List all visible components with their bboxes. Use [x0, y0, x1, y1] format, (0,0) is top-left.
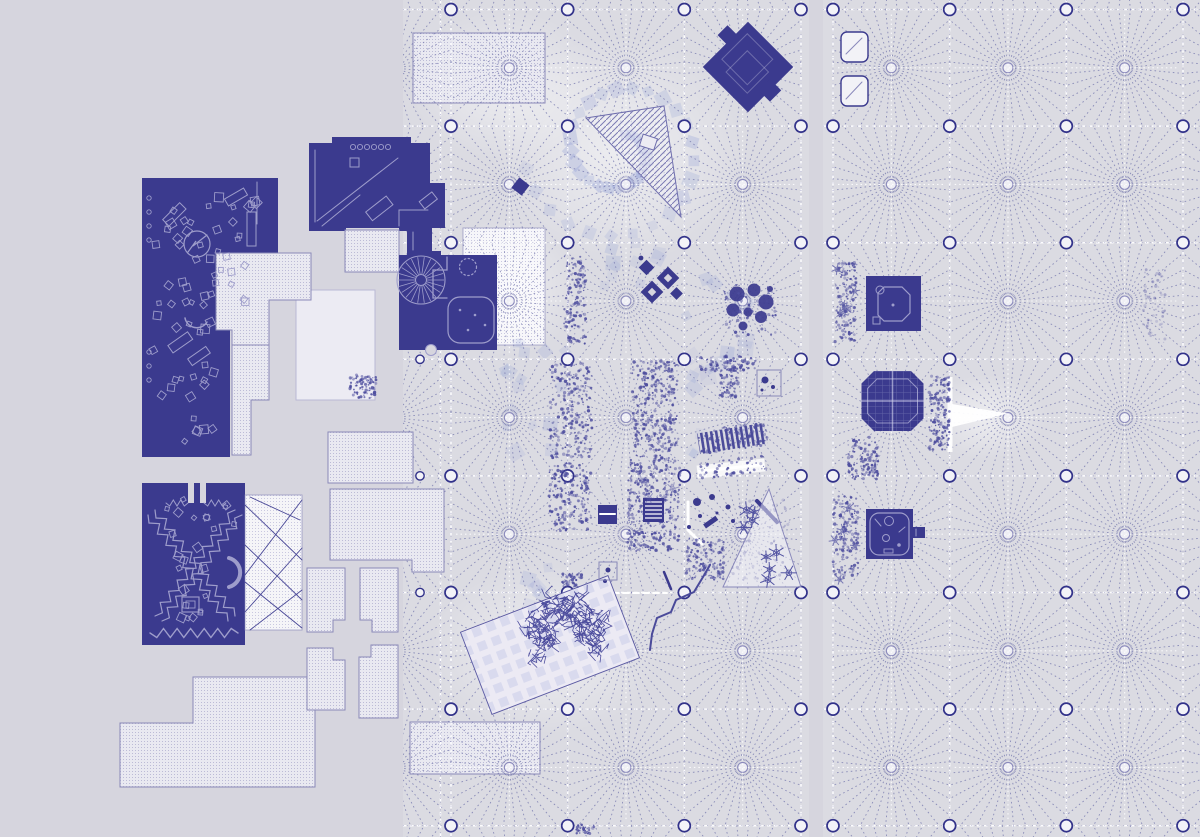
door-notch — [426, 345, 437, 356]
building-connector — [407, 228, 432, 255]
kiosk-rounded — [841, 32, 868, 62]
site-plan-svg — [0, 0, 1200, 837]
grid-node-extra — [416, 588, 424, 596]
blueprint-site-plan — [0, 0, 1200, 837]
hatch-terrace — [330, 489, 444, 572]
hatch-court-west-step — [232, 345, 269, 455]
grid-node-extra — [416, 355, 424, 363]
dot-mark — [467, 329, 470, 332]
dot-mark — [762, 377, 769, 384]
dot-mark — [474, 314, 477, 317]
hatch-strings-court — [245, 495, 302, 630]
white-panel — [296, 290, 375, 400]
building-rotunda-house — [399, 251, 497, 350]
roof-slit — [188, 483, 194, 503]
octagon-pavilion — [862, 371, 924, 431]
grid-node-extra — [416, 472, 424, 480]
hatch-terrace — [359, 645, 398, 718]
building-pavilion-ne — [866, 276, 921, 331]
dot-mark — [459, 309, 462, 312]
dot-mark — [761, 389, 764, 392]
dot-mark — [771, 385, 775, 389]
hatch-terrace — [360, 568, 398, 632]
dot-mark — [484, 324, 487, 327]
dot-mark — [606, 568, 611, 573]
roof-slit — [200, 483, 206, 503]
plan-layers — [120, 0, 1200, 837]
hatch-pad-hall — [345, 230, 399, 272]
hatch-terrace — [307, 568, 345, 632]
hatch-terrace — [328, 432, 413, 483]
hatch-terrace-steps — [120, 677, 315, 787]
hatch-terrace — [307, 648, 345, 710]
kiosk-rounded — [841, 76, 868, 106]
